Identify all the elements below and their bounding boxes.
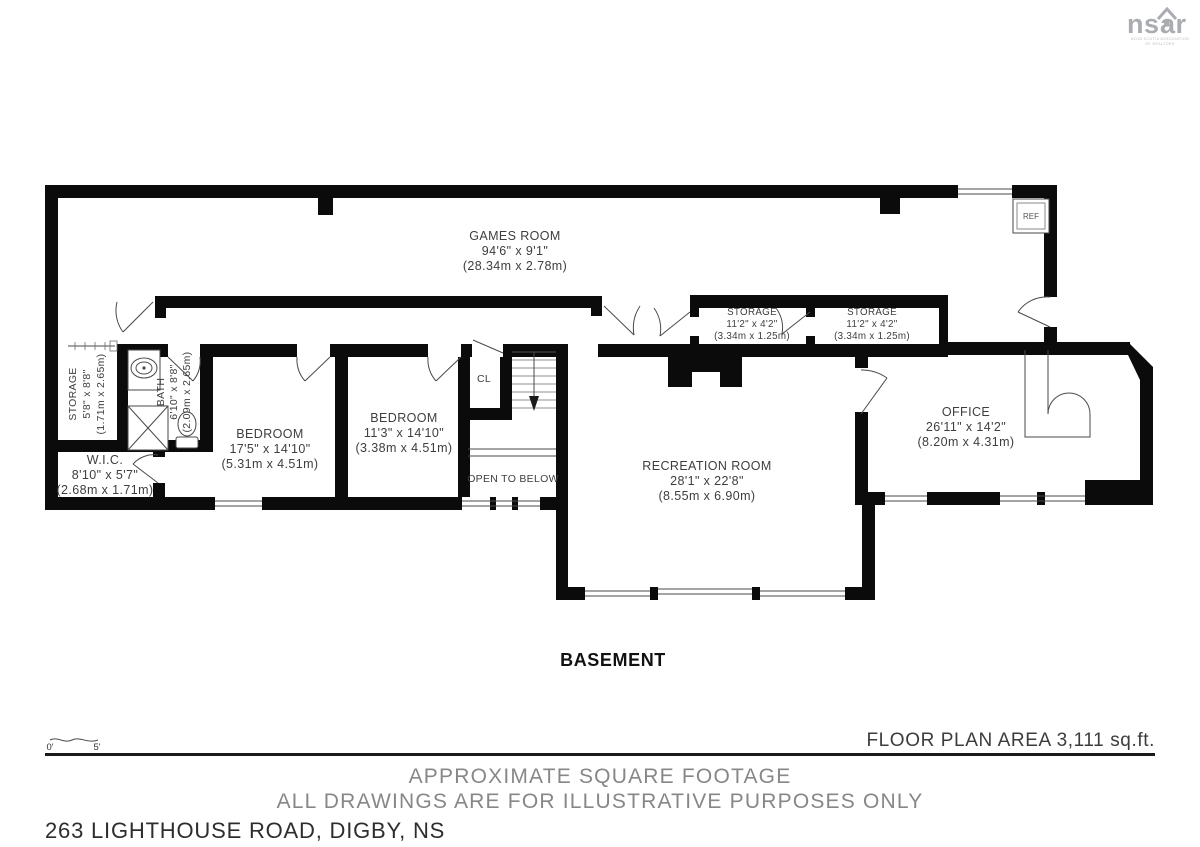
windows-recreation [585,589,845,596]
desk-outline [1025,350,1090,437]
svg-text:(3.34m x 1.25m): (3.34m x 1.25m) [834,331,910,342]
closet-rod [68,341,117,351]
walls [45,185,1153,600]
window-top-right [958,185,1012,198]
ref-box: REF [1013,199,1049,233]
scale-zero: 0' [46,742,53,753]
logo-text-right: ar [1160,9,1187,39]
door-closet [473,340,503,353]
closet-label: CL [477,373,491,385]
floor-plan-page: REF GAMES ROOM 94'6" x 9'1" (28.34m x 2.… [0,0,1200,847]
label-bedroom-1: BEDROOM 17'5" x 14'10" (5.31m x 4.51m) [221,427,318,471]
svg-text:STORAGE: STORAGE [847,307,897,318]
svg-text:17'5" x 14'10": 17'5" x 14'10" [229,442,310,456]
svg-text:(8.55m x 6.90m): (8.55m x 6.90m) [658,489,755,503]
level-title: BASEMENT [560,650,666,670]
svg-text:RECREATION ROOM: RECREATION ROOM [642,459,771,473]
svg-text:11'2" x 4'2": 11'2" x 4'2" [726,319,777,330]
address-title: 263 LIGHTHOUSE ROAD, DIGBY, NS [45,818,445,843]
label-recreation: RECREATION ROOM 28'1" x 22'8" (8.55m x 6… [642,459,771,503]
svg-text:6'10" x 8'8": 6'10" x 8'8" [168,364,180,419]
door-bedroom-2 [428,357,461,381]
footer-line-2: ALL DRAWINGS ARE FOR ILLUSTRATIVE PURPOS… [277,790,924,813]
door-office [861,370,887,414]
svg-text:(2.09m x 2.65m): (2.09m x 2.65m) [181,352,193,433]
open-to-below-edge [468,449,556,456]
stair-direction-arrow [529,352,539,411]
svg-text:(5.31m x 4.51m): (5.31m x 4.51m) [221,457,318,471]
shower-icon [128,406,168,450]
svg-text:BATH: BATH [155,378,167,406]
svg-text:26'11" x 14'2": 26'11" x 14'2" [926,420,1006,434]
footer-line-1: APPROXIMATE SQUARE FOOTAGE [409,765,792,788]
scale-five: 5' [93,742,100,753]
label-office: OFFICE 26'11" x 14'2" (8.20m x 4.31m) [917,405,1014,449]
logo-tagline-1: NOVA SCOTIA ASSOCIATION [1131,37,1189,41]
door-games-right [1018,297,1050,327]
svg-text:OFFICE: OFFICE [942,405,990,419]
svg-text:5'8" x 8'8": 5'8" x 8'8" [81,369,93,418]
svg-text:94'6" x 9'1": 94'6" x 9'1" [482,244,548,258]
svg-text:(3.38m x 4.51m): (3.38m x 4.51m) [355,441,452,455]
svg-text:STORAGE: STORAGE [67,367,79,420]
open-to-below-label: OPEN TO BELOW [467,473,559,485]
label-storage-b: STORAGE 11'2" x 4'2" (3.34m x 1.25m) [834,307,910,342]
label-bedroom-2: BEDROOM 11'3" x 14'10" (3.38m x 4.51m) [355,411,452,455]
doors-recreation-double [604,306,690,336]
nsar-logo: ns ar NOVA SCOTIA ASSOCIATION OF REALTOR… [1127,9,1189,46]
door-hall-games [116,302,153,332]
door-bedroom-1 [297,357,330,381]
logo-tagline-2: OF REALTORS [1145,42,1175,46]
svg-text:BEDROOM: BEDROOM [236,427,303,441]
svg-text:11'3" x 14'10": 11'3" x 14'10" [364,426,444,440]
svg-text:(2.68m x 1.71m): (2.68m x 1.71m) [56,483,153,497]
label-wic: W.I.C. 8'10" x 5'7" (2.68m x 1.71m) [56,453,153,497]
logo-text-left: ns [1127,9,1160,39]
floor-plan-area-label: FLOOR PLAN AREA 3,111 sq.ft. [866,730,1155,751]
svg-text:(28.34m x 2.78m): (28.34m x 2.78m) [463,259,567,273]
scale-bar: 0' 5' [46,739,100,753]
divider-line [45,753,1155,756]
svg-text:(1.71m x 2.65m): (1.71m x 2.65m) [95,354,107,435]
svg-text:W.I.C.: W.I.C. [87,453,123,467]
ref-label: REF [1023,212,1039,221]
windows [68,185,1085,596]
svg-text:28'1" x 22'8": 28'1" x 22'8" [670,474,744,488]
label-games-room: GAMES ROOM 94'6" x 9'1" (28.34m x 2.78m) [463,229,567,273]
windows-open-below [462,501,540,506]
window-wic [215,501,262,506]
floor-plan-canvas: REF GAMES ROOM 94'6" x 9'1" (28.34m x 2.… [0,0,1200,847]
svg-text:11'2" x 4'2": 11'2" x 4'2" [846,319,897,330]
svg-text:GAMES ROOM: GAMES ROOM [469,229,561,243]
svg-text:STORAGE: STORAGE [727,307,777,318]
svg-text:8'10" x 5'7": 8'10" x 5'7" [72,468,138,482]
svg-text:(8.20m x 4.31m): (8.20m x 4.31m) [917,435,1014,449]
label-storage-left: STORAGE 5'8" x 8'8" (1.71m x 2.65m) [67,354,107,435]
svg-text:(3.34m x 1.25m): (3.34m x 1.25m) [714,331,790,342]
svg-text:BEDROOM: BEDROOM [370,411,437,425]
